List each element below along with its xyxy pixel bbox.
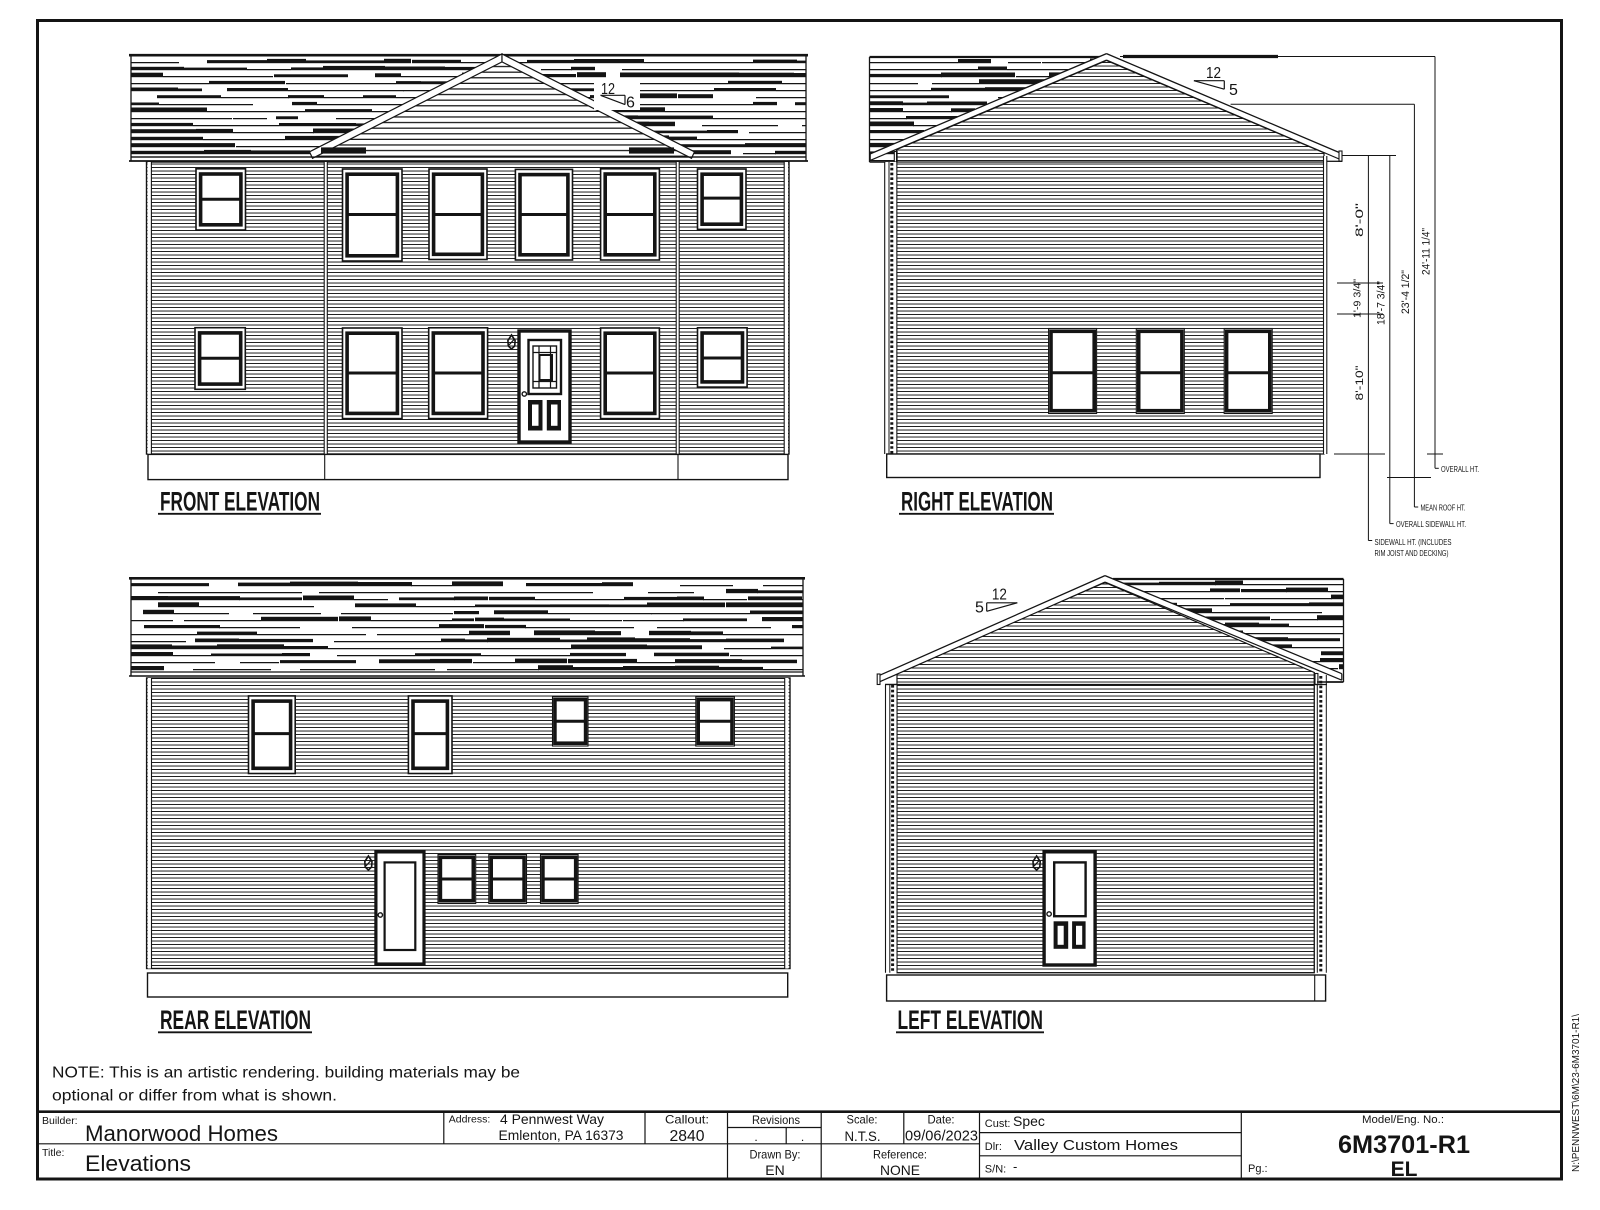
- svg-text:RIM JOIST AND DECKING): RIM JOIST AND DECKING): [1375, 548, 1449, 558]
- svg-text:Emlenton, PA 16373: Emlenton, PA 16373: [499, 1127, 624, 1143]
- svg-text:1'-9 3/4": 1'-9 3/4": [1353, 279, 1364, 318]
- svg-text:RIGHT ELEVATION: RIGHT ELEVATION: [901, 487, 1053, 517]
- svg-text:18'-7 3/4": 18'-7 3/4": [1375, 281, 1387, 325]
- svg-text:REAR ELEVATION: REAR ELEVATION: [160, 1005, 311, 1035]
- svg-text:4 Pennwest Way: 4 Pennwest Way: [500, 1111, 604, 1127]
- svg-text:Manorwood Homes: Manorwood Homes: [85, 1121, 278, 1146]
- svg-text:.: .: [801, 1130, 804, 1144]
- svg-text:Date:: Date:: [928, 1113, 955, 1127]
- svg-text:FRONT ELEVATION: FRONT ELEVATION: [160, 487, 320, 517]
- svg-text:optional or differ from what i: optional or differ from what is shown.: [52, 1088, 337, 1105]
- svg-text:Scale:: Scale:: [847, 1113, 878, 1127]
- svg-text:Spec: Spec: [1013, 1113, 1045, 1129]
- svg-text:N:\PENNWEST\6M\23-6M3701-R1\: N:\PENNWEST\6M\23-6M3701-R1\: [1571, 1014, 1582, 1172]
- svg-text:MEAN ROOF HT.: MEAN ROOF HT.: [1421, 503, 1466, 513]
- svg-text:.: .: [754, 1130, 757, 1144]
- svg-text:Valley Custom Homes: Valley Custom Homes: [1014, 1138, 1178, 1154]
- svg-text:NOTE: This is an artistic ren: NOTE: This is an artistic rendering. bui…: [52, 1065, 520, 1082]
- svg-text:6M3701-R1: 6M3701-R1: [1338, 1131, 1470, 1159]
- svg-text:EN: EN: [765, 1162, 784, 1178]
- svg-text:24'-11 1/4": 24'-11 1/4": [1421, 228, 1433, 275]
- svg-text:12: 12: [992, 586, 1007, 603]
- svg-text:NONE: NONE: [880, 1162, 920, 1178]
- svg-text:Callout:: Callout:: [665, 1113, 709, 1127]
- svg-text:S/N:: S/N:: [985, 1164, 1006, 1176]
- svg-text:09/06/2023: 09/06/2023: [905, 1128, 978, 1145]
- svg-text:N.T.S.: N.T.S.: [845, 1128, 881, 1144]
- svg-text:Reference:: Reference:: [873, 1148, 927, 1162]
- svg-text:5: 5: [1229, 82, 1238, 99]
- svg-text:OVERALL HT.: OVERALL HT.: [1441, 464, 1479, 474]
- svg-text:Dlr:: Dlr:: [985, 1141, 1002, 1153]
- svg-text:8'-0": 8'-0": [1354, 203, 1366, 237]
- svg-text:Address:: Address:: [449, 1114, 490, 1126]
- svg-text:12: 12: [1206, 65, 1221, 82]
- svg-text:Revisions: Revisions: [752, 1113, 800, 1127]
- svg-text:23'-4 1/2": 23'-4 1/2": [1400, 270, 1412, 314]
- svg-text:Pg.:: Pg.:: [1248, 1163, 1268, 1175]
- svg-text:-: -: [1013, 1159, 1017, 1174]
- svg-text:Builder:: Builder:: [42, 1115, 78, 1127]
- svg-text:2840: 2840: [670, 1128, 705, 1145]
- svg-text:OVERALL SIDEWALL HT.: OVERALL SIDEWALL HT.: [1396, 519, 1466, 529]
- svg-text:Model/Eng. No.:: Model/Eng. No.:: [1362, 1114, 1444, 1126]
- svg-text:SIDEWALL HT. (INCLUDES: SIDEWALL HT. (INCLUDES: [1375, 537, 1452, 547]
- svg-text:8'-10": 8'-10": [1354, 365, 1366, 400]
- svg-text:Drawn By:: Drawn By:: [750, 1148, 801, 1162]
- svg-text:Elevations: Elevations: [85, 1151, 191, 1176]
- svg-text:LEFT ELEVATION: LEFT ELEVATION: [898, 1005, 1044, 1035]
- svg-text:Title:: Title:: [42, 1147, 64, 1159]
- svg-text:EL: EL: [1391, 1158, 1418, 1181]
- svg-text:Cust:: Cust:: [985, 1118, 1011, 1130]
- svg-text:6: 6: [626, 94, 635, 111]
- svg-text:5: 5: [975, 600, 984, 617]
